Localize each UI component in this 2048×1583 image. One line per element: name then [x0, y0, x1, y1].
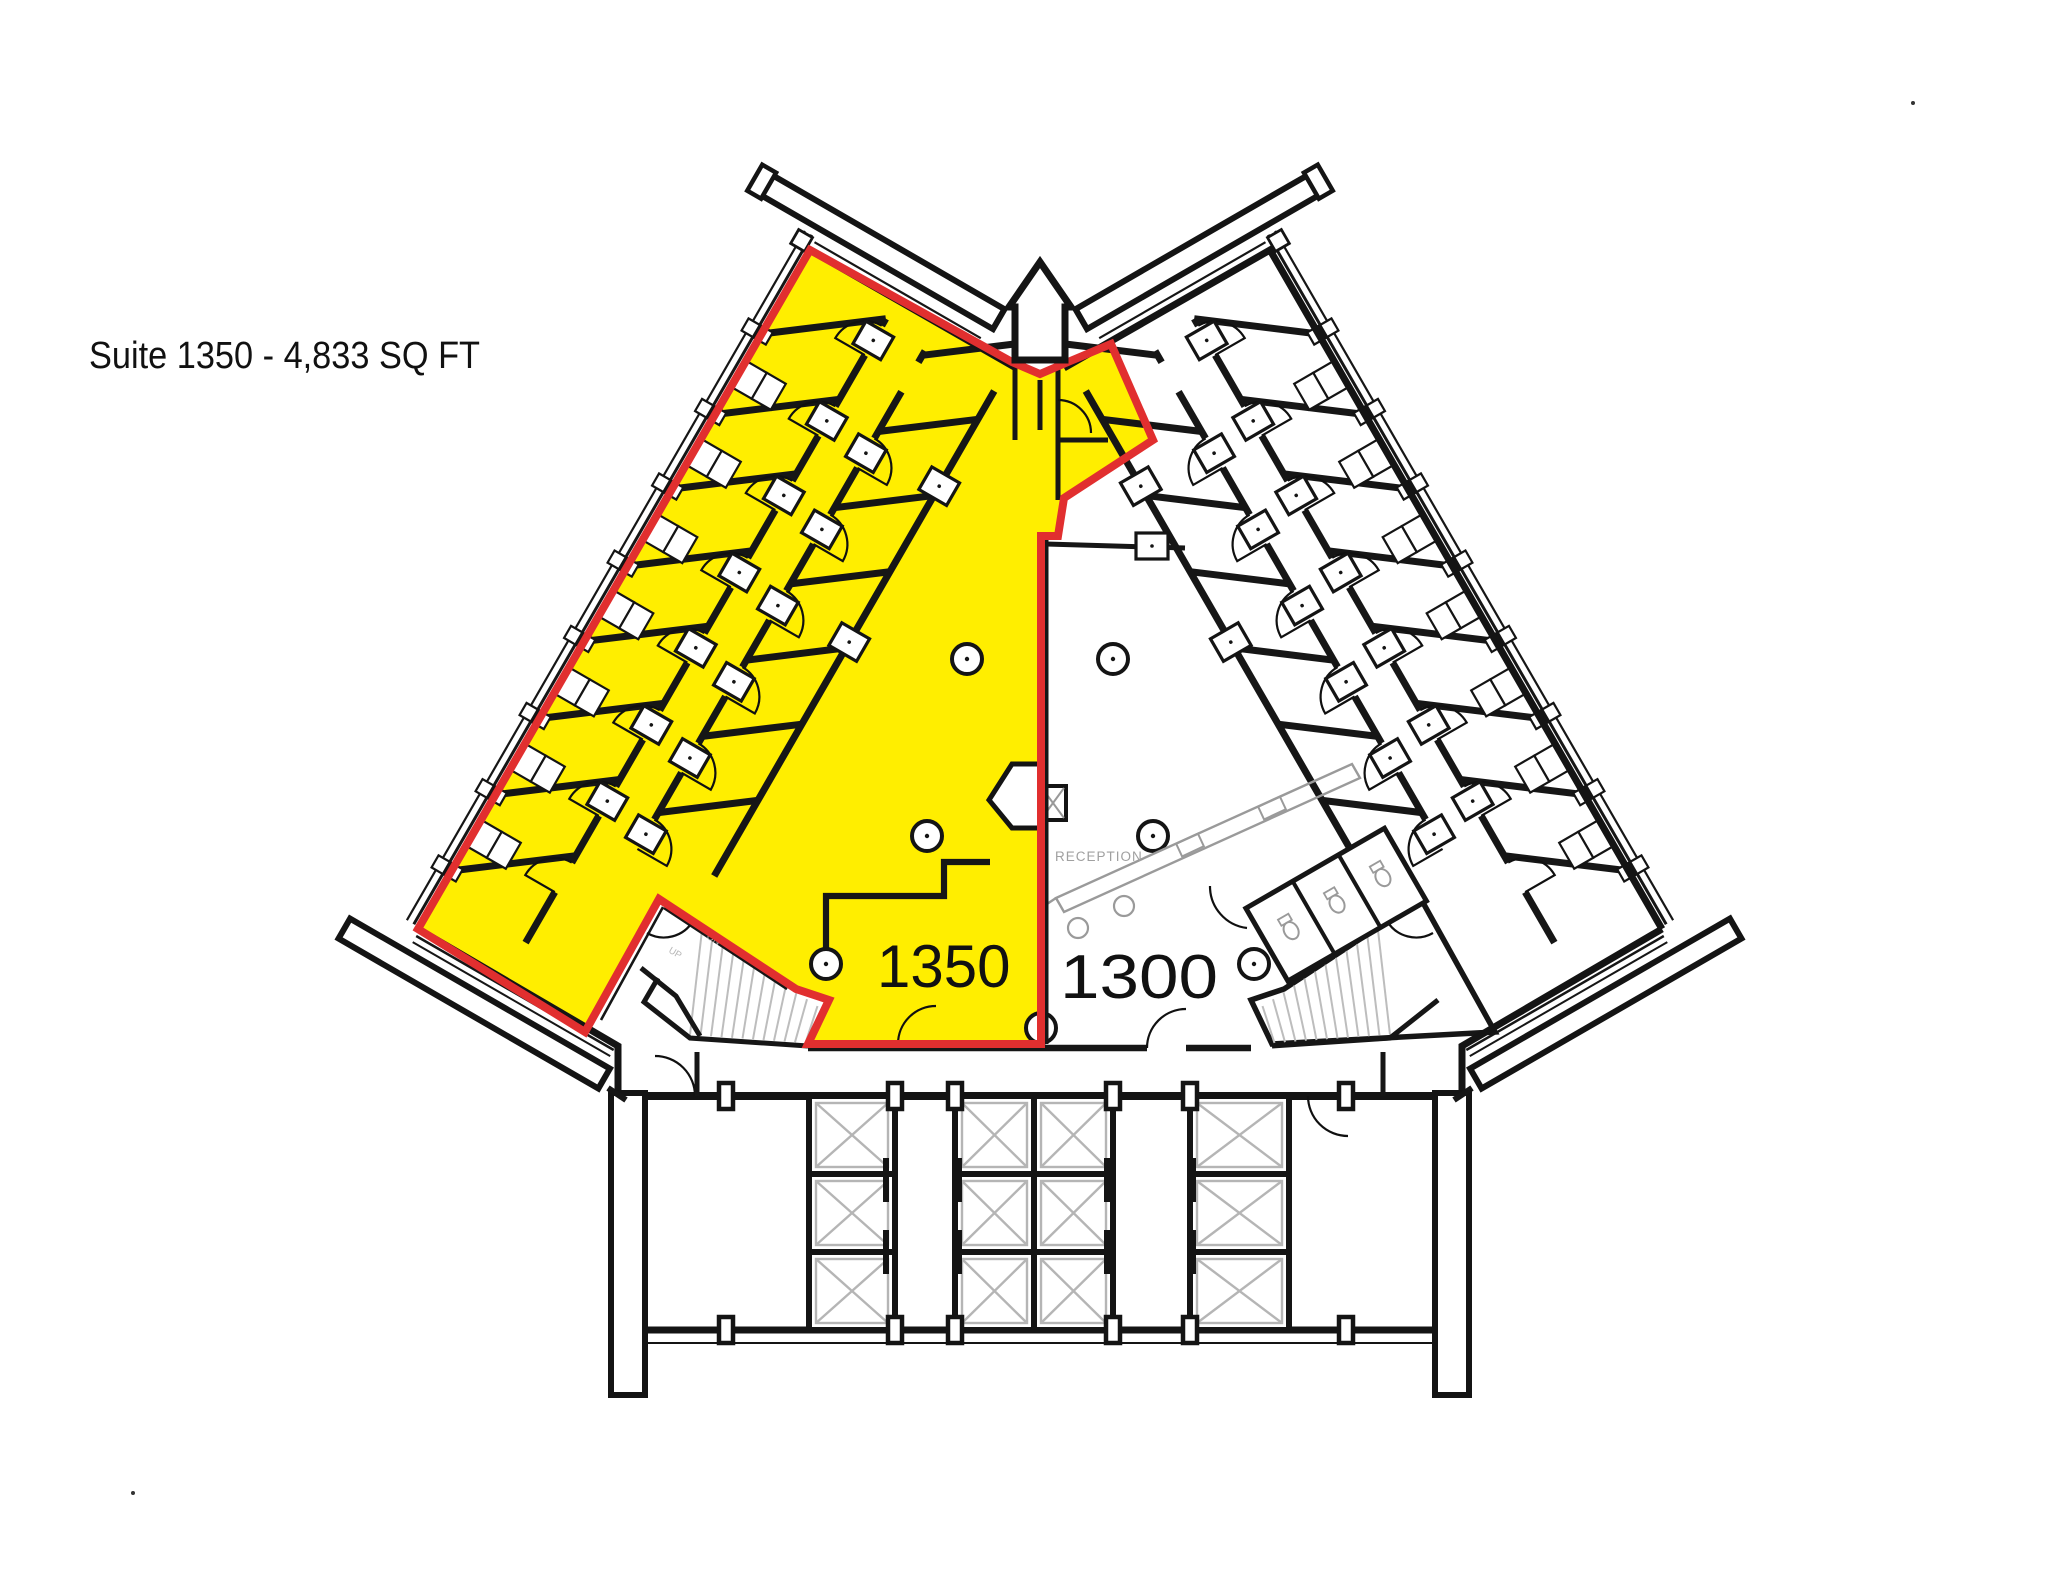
svg-text:Suite 1350 - 4,833 SQ FT: Suite 1350 - 4,833 SQ FT: [89, 335, 480, 377]
svg-text:RECEPTION: RECEPTION: [1055, 849, 1143, 864]
svg-text:1350: 1350: [877, 933, 1010, 1000]
svg-text:1300: 1300: [1060, 943, 1218, 1012]
